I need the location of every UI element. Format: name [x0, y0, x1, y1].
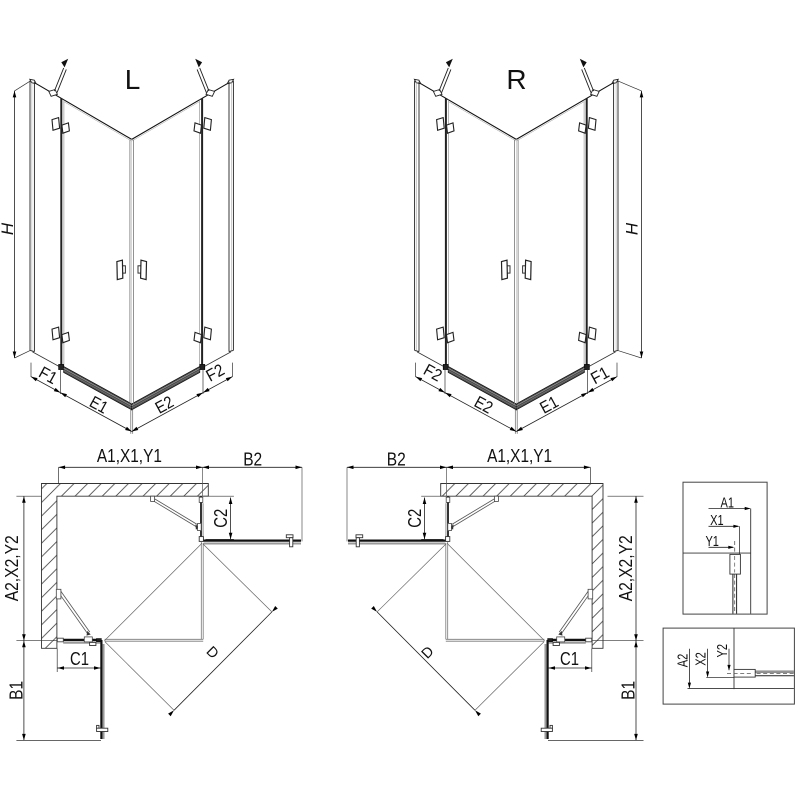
- svg-text:X2: X2: [693, 652, 709, 666]
- svg-text:C2: C2: [211, 509, 231, 528]
- svg-text:A2: A2: [676, 654, 692, 668]
- svg-text:C1: C1: [70, 649, 89, 669]
- svg-text:H: H: [623, 222, 642, 235]
- svg-text:A1,X1,Y1: A1,X1,Y1: [97, 446, 162, 466]
- svg-text:C1: C1: [560, 649, 579, 669]
- svg-text:B2: B2: [243, 450, 262, 470]
- svg-text:A1: A1: [721, 495, 735, 511]
- svg-text:X1: X1: [710, 513, 724, 529]
- svg-text:R: R: [506, 64, 526, 95]
- svg-text:L: L: [125, 64, 141, 95]
- svg-text:B2: B2: [387, 450, 406, 470]
- svg-text:A2,X2,Y2: A2,X2,Y2: [2, 535, 22, 601]
- svg-text:B1: B1: [619, 681, 639, 700]
- svg-text:A1,X1,Y1: A1,X1,Y1: [487, 446, 552, 466]
- svg-text:B1: B1: [7, 681, 27, 700]
- svg-text:Y1: Y1: [705, 534, 719, 550]
- svg-text:C2: C2: [405, 509, 425, 528]
- svg-text:A2,X2,Y2: A2,X2,Y2: [616, 535, 636, 601]
- svg-text:H: H: [0, 222, 17, 235]
- svg-text:Y2: Y2: [715, 644, 731, 658]
